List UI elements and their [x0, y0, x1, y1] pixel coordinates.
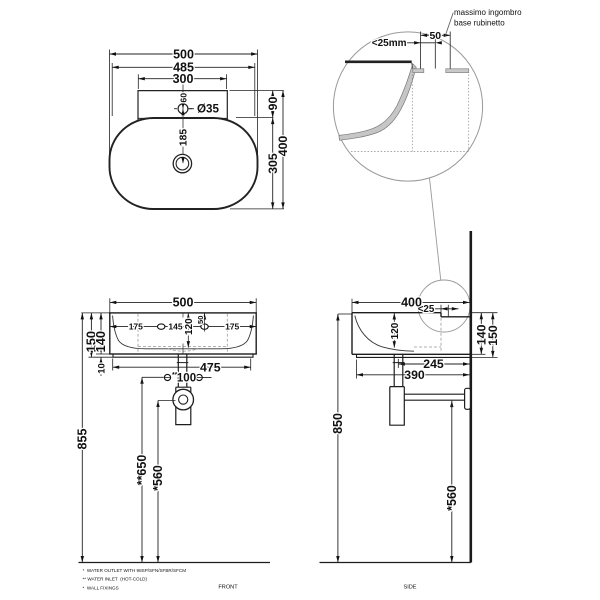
- svg-text:145: 145: [168, 322, 182, 332]
- svg-text:FRONT: FRONT: [218, 585, 238, 591]
- svg-text:500: 500: [173, 47, 194, 61]
- svg-text:175: 175: [225, 322, 239, 332]
- svg-text:120: 120: [390, 322, 401, 339]
- svg-text:massimo ingombro: massimo ingombro: [454, 8, 522, 17]
- svg-text:*560: *560: [445, 485, 459, 511]
- svg-text:245: 245: [423, 357, 444, 371]
- svg-text:<25mm: <25mm: [372, 38, 407, 49]
- svg-text:base rubinetto: base rubinetto: [454, 19, 505, 28]
- svg-text:*560: *560: [151, 465, 165, 491]
- svg-text:475: 475: [200, 360, 221, 374]
- svg-text:855: 855: [76, 429, 90, 450]
- svg-text:185: 185: [179, 129, 190, 146]
- svg-text:150: 150: [486, 325, 500, 346]
- svg-text:**650: **650: [135, 455, 149, 486]
- svg-text:500: 500: [173, 296, 194, 310]
- svg-text:<25: <25: [418, 304, 435, 315]
- svg-text:100: 100: [177, 373, 196, 385]
- svg-text:50: 50: [196, 316, 205, 324]
- svg-text:850: 850: [331, 413, 345, 434]
- svg-text:400: 400: [276, 136, 290, 157]
- svg-text:60: 60: [178, 93, 188, 103]
- svg-text:Ø35: Ø35: [197, 103, 219, 116]
- svg-text:** WATER INLET (HOT-COLD): ** WATER INLET (HOT-COLD): [83, 577, 148, 582]
- svg-text:10: 10: [96, 363, 107, 374]
- svg-text:* WALL FIXINGS: * WALL FIXINGS: [83, 586, 119, 591]
- svg-text:SIDE: SIDE: [403, 585, 416, 591]
- svg-text:390: 390: [404, 368, 425, 382]
- svg-text:300: 300: [173, 72, 194, 86]
- svg-text:* WATER OUTLET WITH 98SP/SFN/: * WATER OUTLET WITH 98SP/SFN/SFBR/SFCM: [83, 568, 187, 573]
- svg-text:90: 90: [266, 97, 280, 111]
- svg-text:140: 140: [93, 331, 108, 352]
- svg-text:175: 175: [129, 322, 143, 332]
- svg-text:50: 50: [429, 30, 441, 42]
- svg-text:120: 120: [184, 318, 195, 335]
